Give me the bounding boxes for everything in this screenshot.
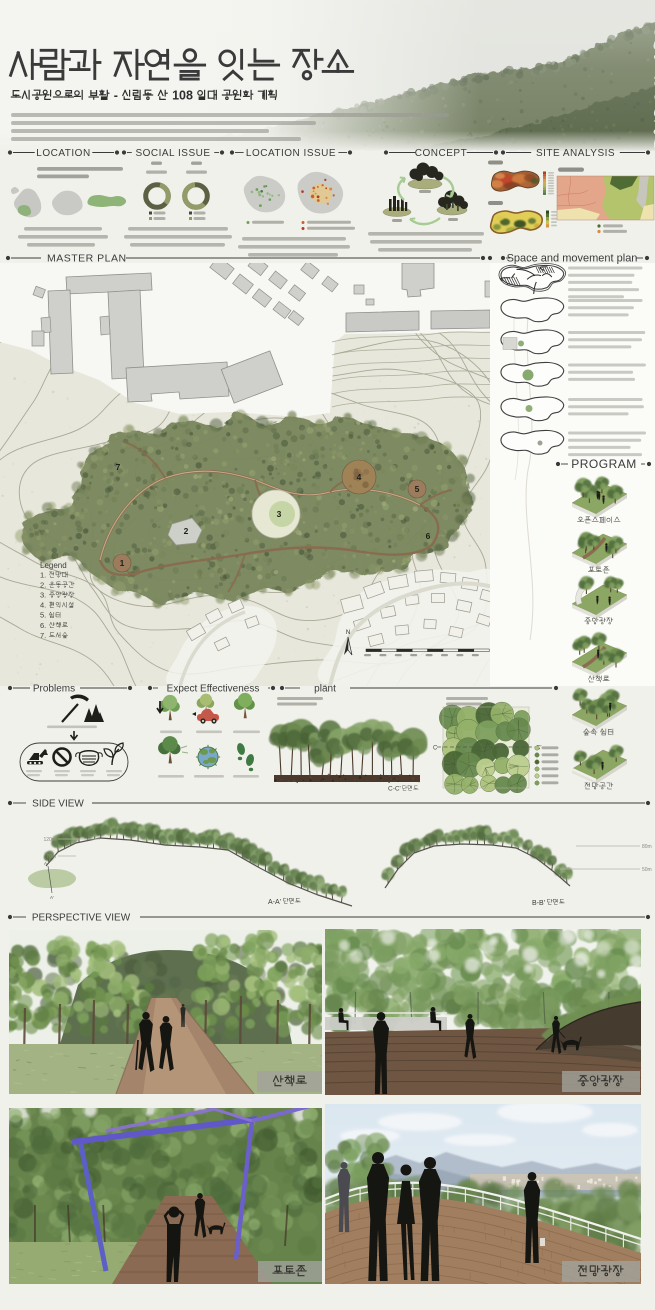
svg-text:2: 2 [184,526,189,536]
svg-text:N: N [346,630,350,636]
svg-text:50m: 50m [642,867,652,873]
svg-text:SIDE VIEW: SIDE VIEW [32,799,84,810]
svg-text:SITE ANALYSIS: SITE ANALYSIS [536,148,615,159]
svg-text:6.: 6. [40,621,46,630]
svg-text:B-B': B-B' [532,900,545,907]
svg-text:LOCATION ISSUE: LOCATION ISSUE [246,148,336,159]
svg-text:plant: plant [314,684,336,695]
svg-text:CONCEPT: CONCEPT [415,148,467,159]
svg-text:A-A': A-A' [268,899,281,906]
svg-text:-: - [114,89,118,103]
svg-text:PERSPECTIVE VIEW: PERSPECTIVE VIEW [32,913,131,924]
svg-text:80m: 80m [642,844,652,850]
svg-text:Space and movement plan: Space and movement plan [507,253,638,265]
svg-text:120m: 120m [43,837,56,843]
svg-text:MASTER PLAN: MASTER PLAN [47,253,127,265]
svg-text:7: 7 [116,462,121,472]
svg-text:1.: 1. [40,570,46,579]
svg-text:7.: 7. [40,631,46,640]
svg-text:A: A [44,861,47,866]
svg-text:70m: 70m [46,854,56,860]
svg-text:SOCIAL ISSUE: SOCIAL ISSUE [135,148,210,159]
svg-text:5: 5 [415,484,420,494]
svg-text:3: 3 [277,509,282,519]
svg-text:2.: 2. [40,580,46,589]
svg-text:LOCATION: LOCATION [36,148,90,159]
svg-text:C: C [433,746,438,752]
svg-text:Problems: Problems [33,684,75,695]
svg-text:6: 6 [426,531,431,541]
svg-text:5.: 5. [40,611,46,620]
svg-text:108: 108 [172,89,193,103]
svg-text:3.: 3. [40,591,46,600]
svg-text:4.: 4. [40,601,46,610]
svg-text:C-C': C-C' [388,786,401,793]
svg-text:4: 4 [357,472,362,482]
svg-text:1: 1 [120,558,125,568]
svg-text:PROGRAM: PROGRAM [571,457,637,471]
svg-text:Legend: Legend [40,561,67,570]
svg-text:A': A' [50,895,54,900]
